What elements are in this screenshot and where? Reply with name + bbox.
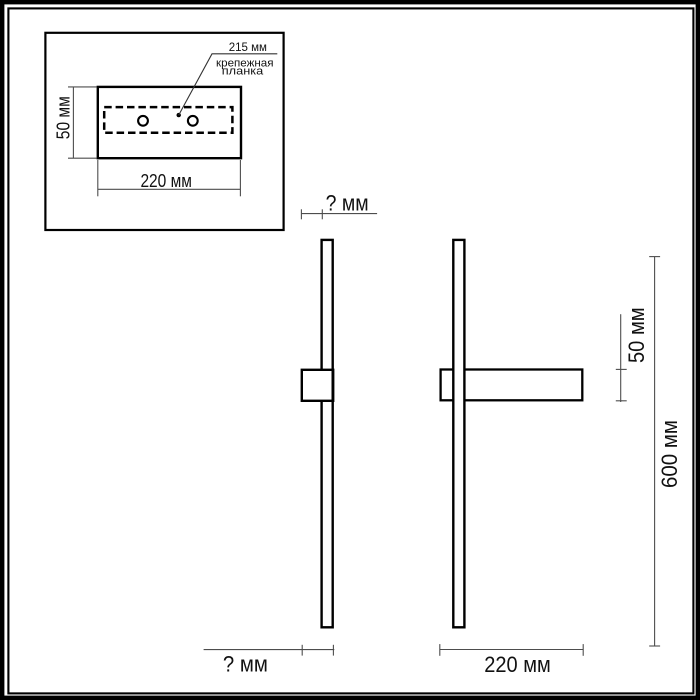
svg-text:50 мм: 50 мм xyxy=(624,307,649,363)
svg-text:планка: планка xyxy=(222,65,265,77)
svg-text:215 мм: 215 мм xyxy=(229,42,267,54)
svg-text:? мм: ? мм xyxy=(223,652,268,677)
svg-text:220 мм: 220 мм xyxy=(140,171,192,191)
svg-text:? мм: ? мм xyxy=(326,191,369,216)
svg-text:220 мм: 220 мм xyxy=(484,652,551,677)
svg-text:50 мм: 50 мм xyxy=(54,96,74,139)
svg-text:600 мм: 600 мм xyxy=(657,420,682,488)
